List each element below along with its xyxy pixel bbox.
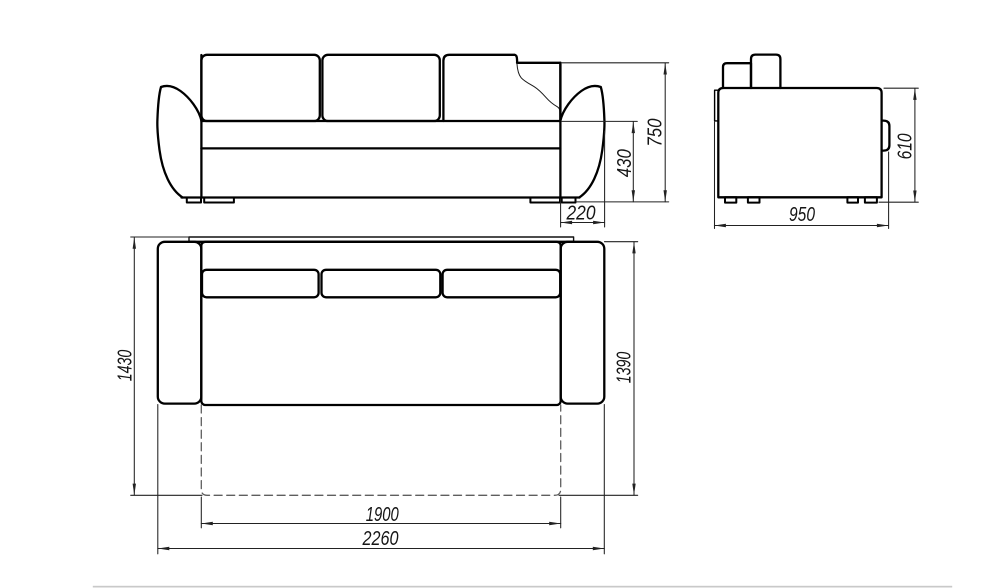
svg-text:430: 430 <box>614 149 636 177</box>
svg-text:610: 610 <box>895 133 917 159</box>
svg-text:220: 220 <box>566 203 596 225</box>
svg-text:2260: 2260 <box>362 528 399 550</box>
svg-text:750: 750 <box>645 119 667 147</box>
svg-text:1430: 1430 <box>114 350 136 382</box>
svg-text:1900: 1900 <box>366 504 399 526</box>
svg-text:1390: 1390 <box>614 352 636 384</box>
svg-text:950: 950 <box>789 204 815 226</box>
